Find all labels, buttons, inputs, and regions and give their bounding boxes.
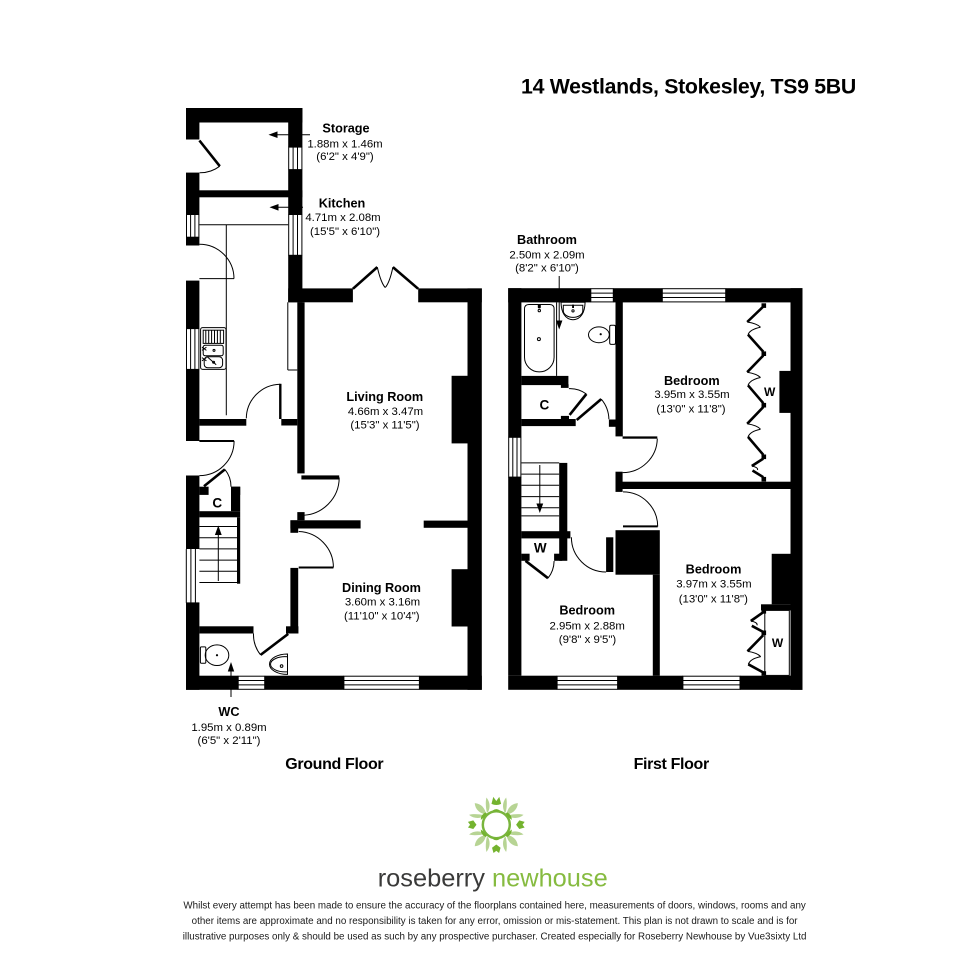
svg-text:Bedroom: Bedroom bbox=[664, 374, 720, 388]
svg-text:W: W bbox=[764, 385, 776, 399]
svg-text:roseberry newhouse: roseberry newhouse bbox=[378, 864, 608, 892]
svg-text:4.66m x 3.47m: 4.66m x 3.47m bbox=[348, 406, 423, 418]
svg-text:(9'8" x 9'5"): (9'8" x 9'5") bbox=[559, 634, 617, 646]
svg-text:Bathroom: Bathroom bbox=[517, 233, 577, 247]
svg-text:3.60m x 3.16m: 3.60m x 3.16m bbox=[345, 597, 420, 609]
svg-text:Living Room: Living Room bbox=[346, 390, 423, 404]
svg-text:Whilst every attempt has been: Whilst every attempt has been made to en… bbox=[183, 900, 806, 911]
svg-text:4.71m x 2.08m: 4.71m x 2.08m bbox=[305, 212, 380, 224]
svg-text:W: W bbox=[772, 636, 784, 650]
svg-text:C: C bbox=[540, 398, 550, 413]
svg-text:3.97m x 3.55m: 3.97m x 3.55m bbox=[676, 579, 751, 591]
svg-text:1.88m x 1.46m: 1.88m x 1.46m bbox=[307, 139, 382, 151]
svg-text:(11'10" x 10'4"): (11'10" x 10'4") bbox=[344, 611, 420, 623]
svg-text:C: C bbox=[212, 495, 222, 510]
svg-text:2.50m x 2.09m: 2.50m x 2.09m bbox=[509, 249, 584, 261]
svg-text:2.95m x 2.88m: 2.95m x 2.88m bbox=[550, 621, 625, 633]
svg-text:Ground Floor: Ground Floor bbox=[285, 756, 383, 773]
svg-text:Kitchen: Kitchen bbox=[319, 196, 366, 210]
svg-text:W: W bbox=[534, 541, 547, 556]
svg-text:(6'2" x 4'9"): (6'2" x 4'9") bbox=[316, 151, 374, 163]
svg-text:(8'2" x 6'10"): (8'2" x 6'10") bbox=[515, 263, 579, 275]
svg-text:First Floor: First Floor bbox=[634, 756, 709, 773]
svg-text:(13'0" x 11'8"): (13'0" x 11'8") bbox=[656, 404, 725, 416]
svg-text:other items are approximate an: other items are approximate and no respo… bbox=[192, 916, 799, 927]
svg-text:14 Westlands, Stokesley, TS9 5: 14 Westlands, Stokesley, TS9 5BU bbox=[521, 74, 856, 98]
svg-text:Storage: Storage bbox=[322, 122, 369, 136]
svg-text:WC: WC bbox=[218, 705, 239, 719]
svg-text:(6'5" x 2'11"): (6'5" x 2'11") bbox=[198, 735, 261, 747]
svg-text:illustrative purposes only & s: illustrative purposes only & should be u… bbox=[183, 932, 807, 943]
svg-text:(13'0" x 11'8"): (13'0" x 11'8") bbox=[679, 594, 748, 606]
svg-text:Bedroom: Bedroom bbox=[559, 603, 615, 617]
svg-text:1.95m x 0.89m: 1.95m x 0.89m bbox=[191, 722, 266, 734]
svg-text:Dining Room: Dining Room bbox=[342, 581, 421, 595]
svg-text:3.95m x 3.55m: 3.95m x 3.55m bbox=[654, 389, 729, 401]
svg-text:(15'3" x 11'5"): (15'3" x 11'5") bbox=[350, 419, 419, 431]
svg-text:(15'5" x 6'10"): (15'5" x 6'10") bbox=[310, 226, 380, 238]
svg-text:Bedroom: Bedroom bbox=[686, 563, 742, 577]
